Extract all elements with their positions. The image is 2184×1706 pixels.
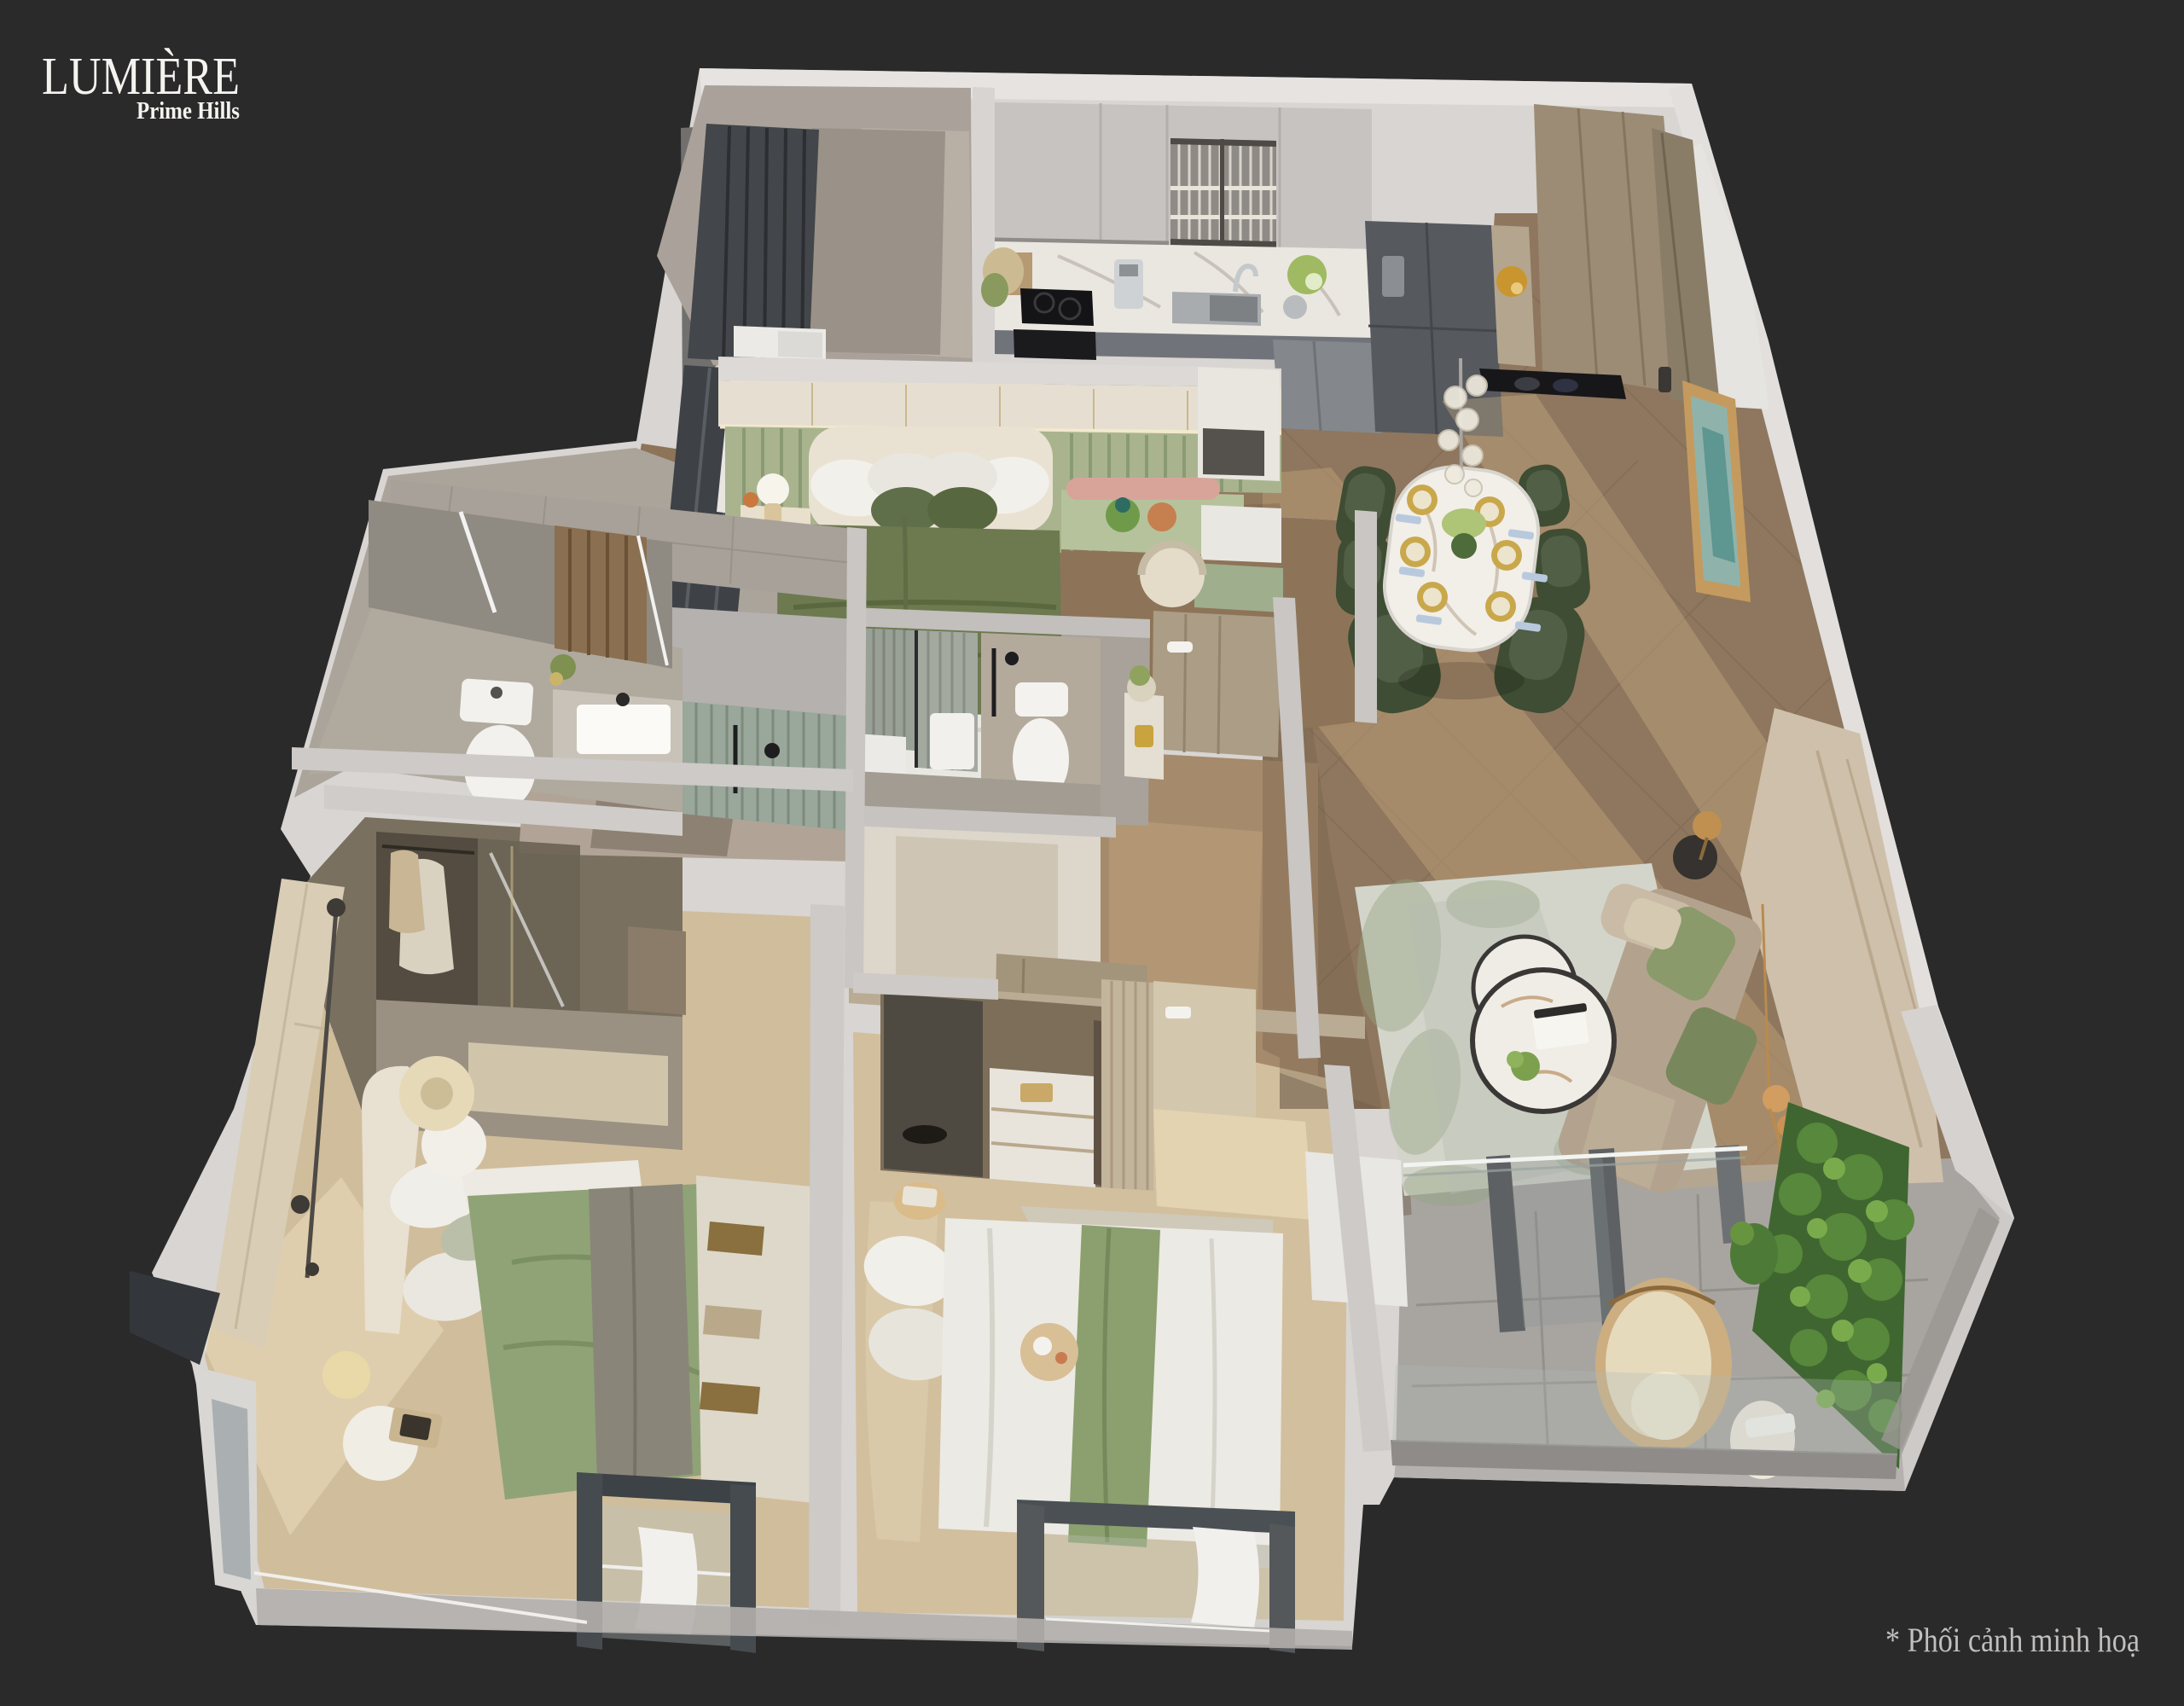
svg-text:* Phối cảnh minh hoạ: * Phối cảnh minh hoạ (1885, 1621, 2140, 1659)
svg-text:LUMIÈRE: LUMIÈRE (42, 48, 240, 106)
svg-text:Prime Hills: Prime Hills (136, 98, 240, 125)
